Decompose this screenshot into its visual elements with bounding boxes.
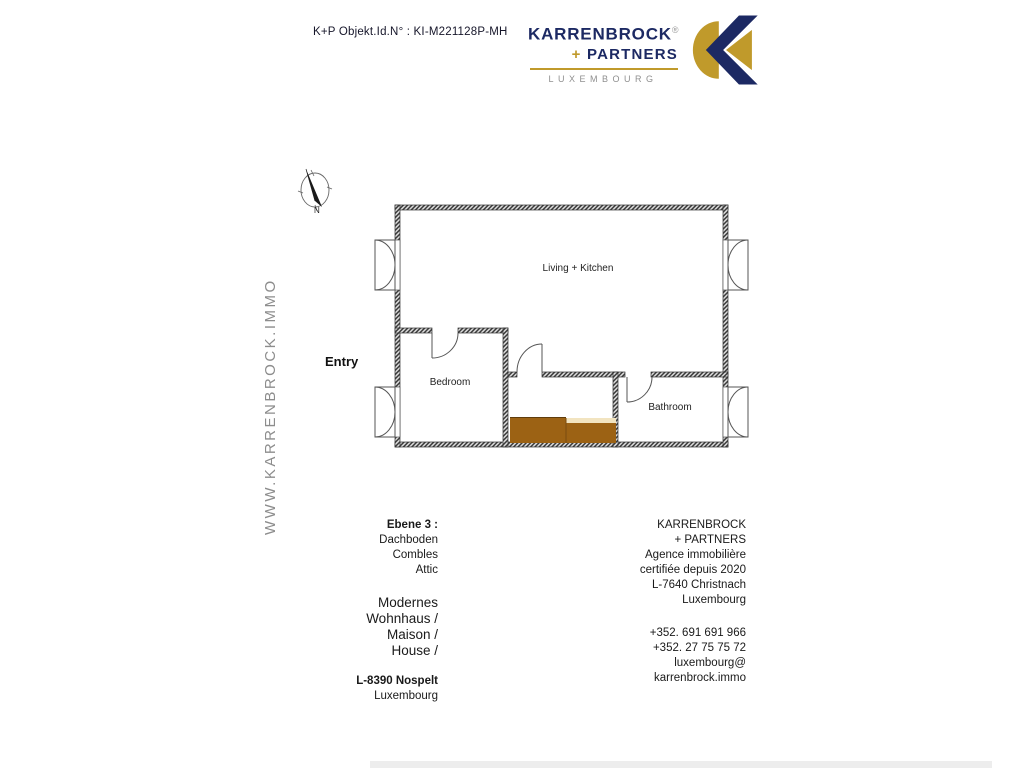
agency-line: Luxembourg [556,593,746,608]
brand-plus-sign: + [572,46,582,63]
agency-info-block: KARRENBROCK + PARTNERS Agence immobilièr… [556,518,746,686]
agency-email: karrenbrock.immo [556,671,746,686]
room-label-bathroom: Bathroom [632,402,708,413]
level-label: Ebene 3 : [248,518,438,533]
property-type-line: Maison / [248,627,438,643]
compass-north-label: N [314,206,320,215]
agency-email: luxembourg@ [556,656,746,671]
agency-line: Agence immobilière [556,548,746,563]
agency-line: KARRENBROCK [556,518,746,533]
property-postcode: L-8390 Nospelt [248,674,438,689]
entry-label: Entry [325,354,358,369]
registered-trademark-symbol: ® [672,25,679,35]
property-type-line: Wohnhaus / [248,611,438,627]
level-line-fr: Combles [248,548,438,563]
brand-gold-divider [530,68,678,71]
property-country: Luxembourg [248,689,438,704]
property-info-block: Ebene 3 : Dachboden Combles Attic Modern… [248,518,438,704]
north-compass-icon: N [294,164,338,216]
floorplan-document-page: K+P Objekt.Id.N° : KI-M221128P-MH KARREN… [0,0,1024,768]
brand-country-text: LUXEMBOURG [528,74,678,84]
page-edge-strip [370,761,992,768]
staircase [510,417,616,443]
level-line-en: Attic [248,563,438,578]
floorplan-drawing [370,195,760,460]
room-label-bedroom: Bedroom [412,377,488,388]
website-watermark: WWW.KARRENBROCK.IMMO [262,243,279,535]
room-label-living-kitchen: Living + Kitchen [510,263,646,274]
window-bedroom [375,387,395,437]
object-id-text: K+P Objekt.Id.N° : KI-M221128P-MH [313,26,508,38]
agency-line: L-7640 Christnach [556,578,746,593]
brand-wordmark: KARRENBROCK® + PARTNERS LUXEMBOURG [528,20,678,84]
agency-phone: +352. 27 75 75 72 [556,641,746,656]
brand-partners-text: PARTNERS [587,46,678,63]
agency-phone: +352. 691 691 966 [556,626,746,641]
window-living-left [375,240,395,290]
brand-name-text: KARRENBROCK [528,25,672,44]
window-bathroom [728,387,748,437]
brand-partners-line: + PARTNERS [528,45,678,64]
property-type-line: Modernes [248,595,438,611]
window-living-right [728,240,748,290]
brand-name: KARRENBROCK® [528,20,678,45]
agency-line: + PARTNERS [556,533,746,548]
karrenbrock-k-logo-icon [690,12,762,88]
agency-line: certifiée depuis 2020 [556,563,746,578]
property-type-line: House / [248,643,438,659]
level-line-de: Dachboden [248,533,438,548]
